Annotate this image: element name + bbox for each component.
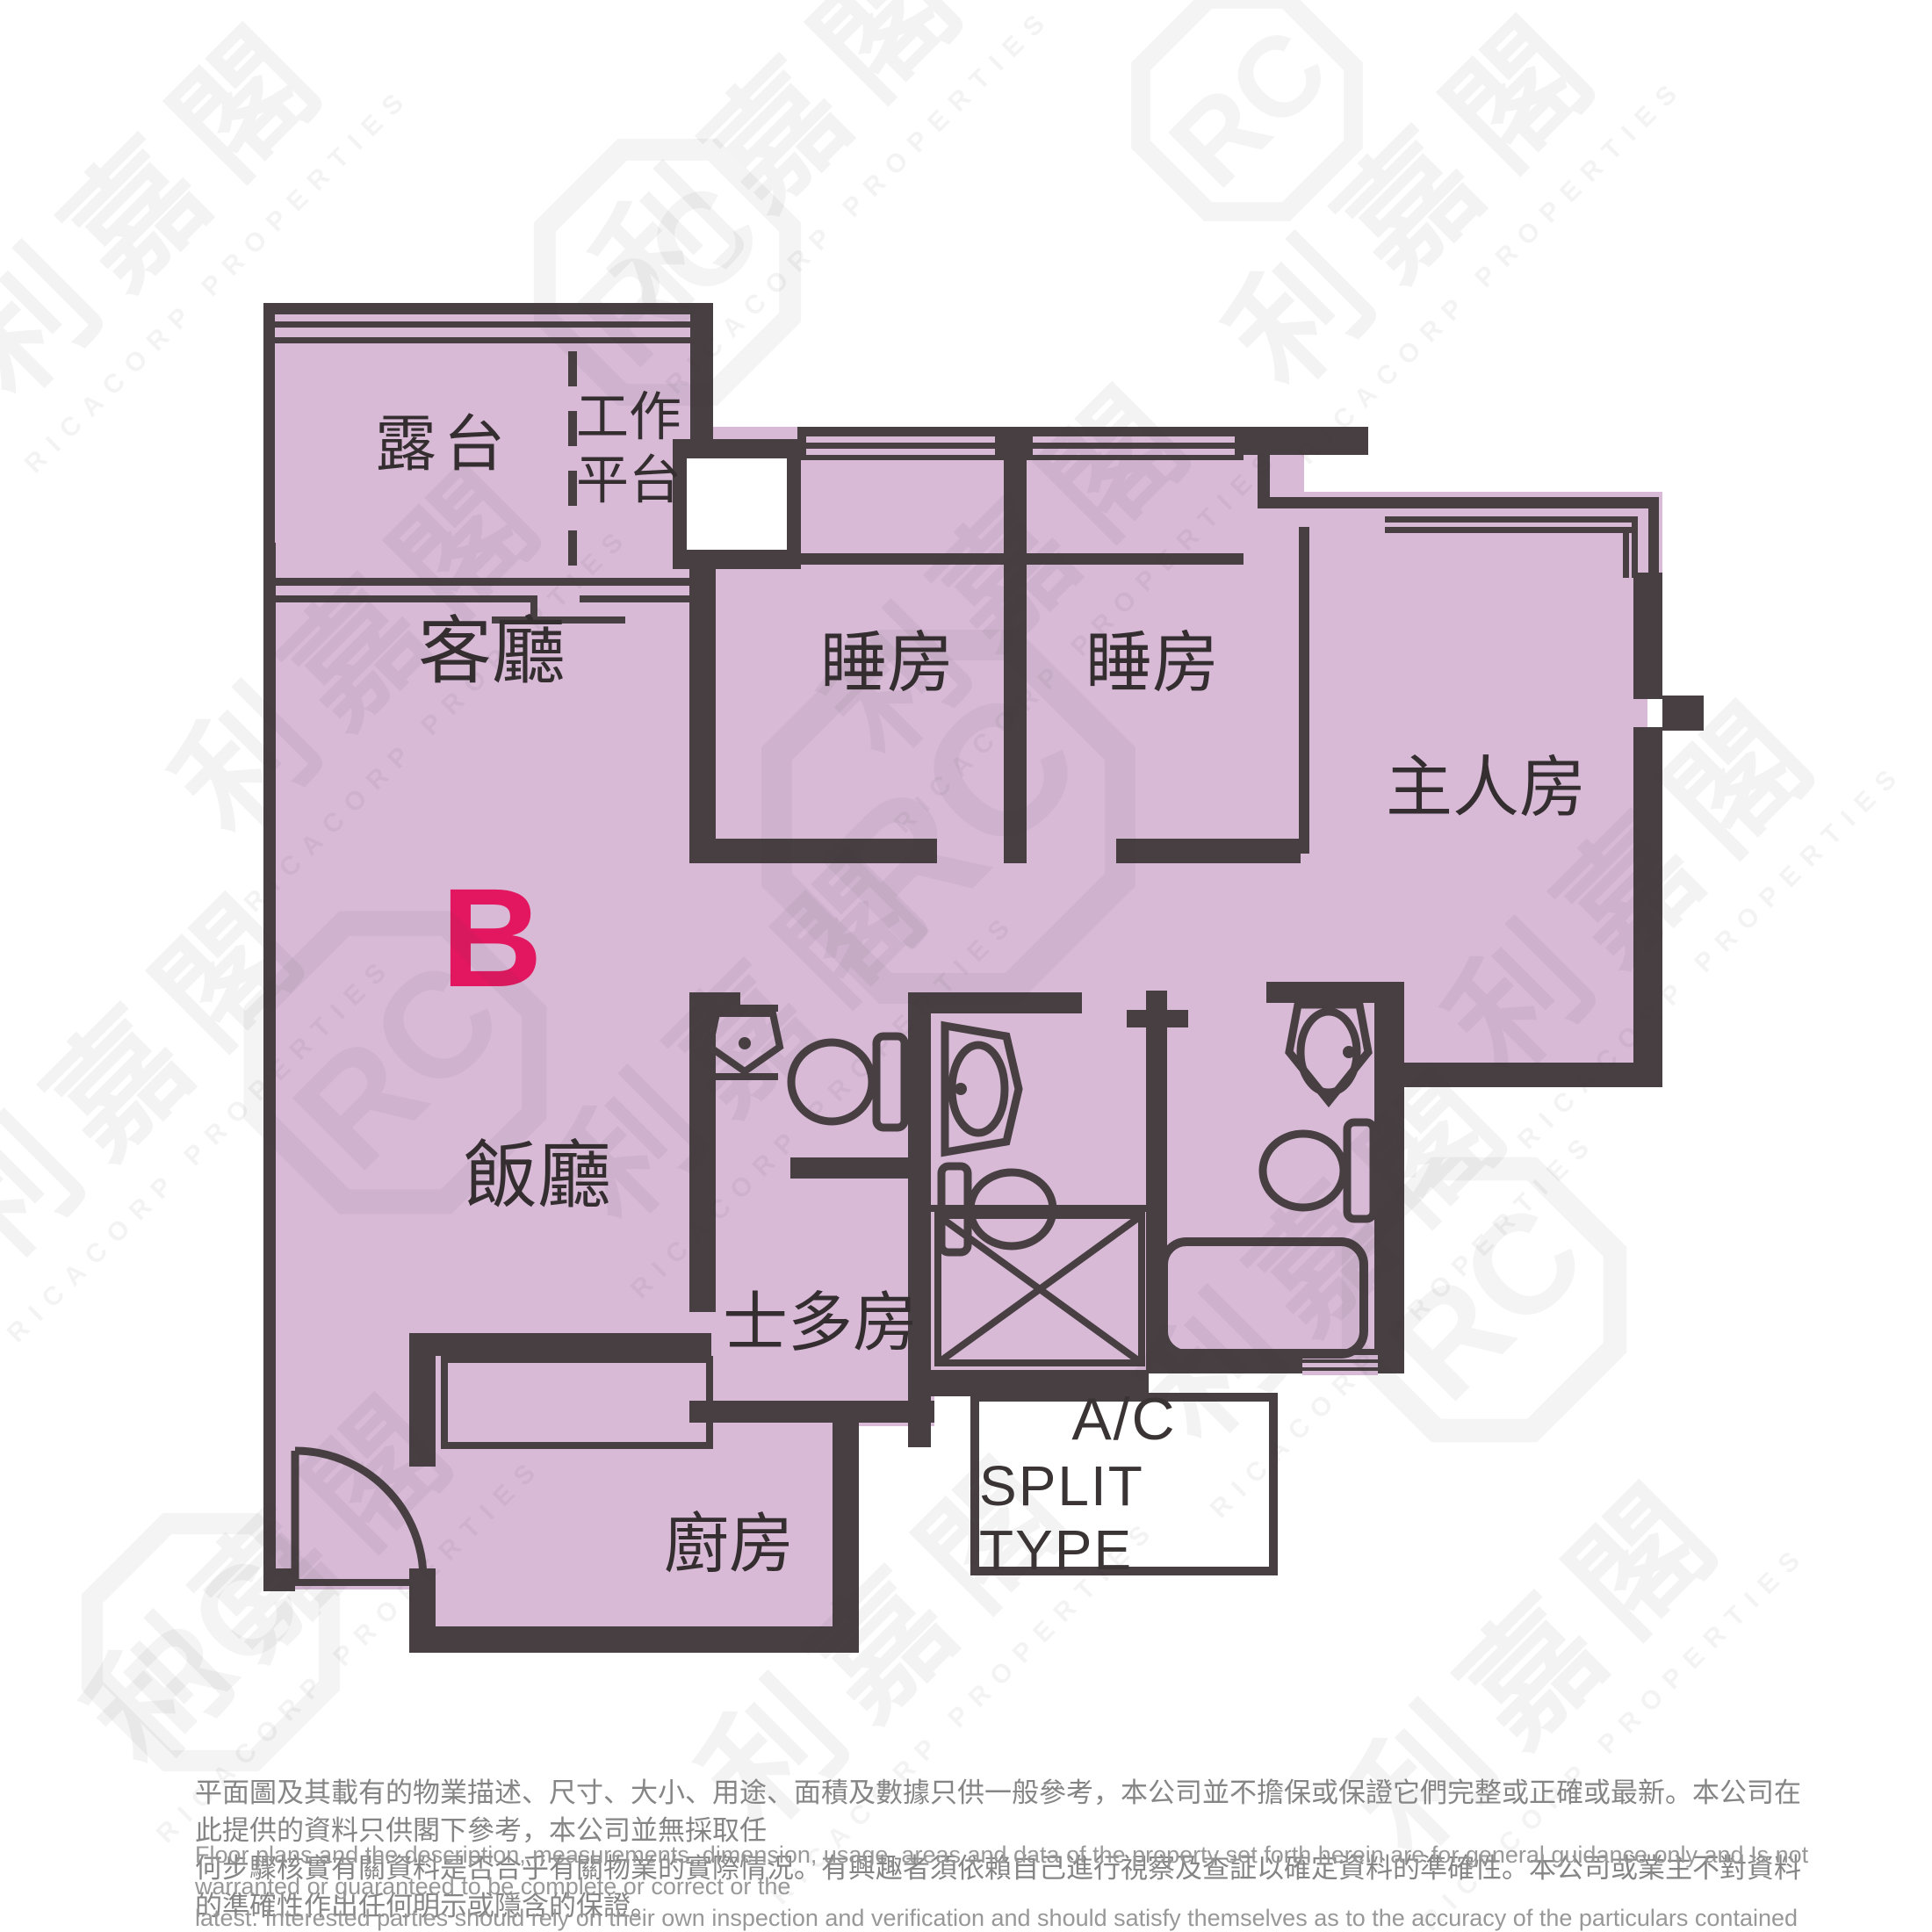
bay-window xyxy=(797,427,1004,460)
wall-segment xyxy=(1116,839,1301,863)
unit-label: B xyxy=(441,857,543,1019)
ac-platform: A/C SPLIT TYPE xyxy=(970,1393,1278,1575)
wall-segment xyxy=(1633,573,1662,699)
door-threshold xyxy=(295,1579,422,1586)
store-room-label: 士多房 xyxy=(723,1271,918,1365)
ac-label-line1: A/C xyxy=(1071,1385,1176,1453)
wall-segment xyxy=(1244,427,1368,455)
wall-segment xyxy=(1127,1010,1188,1027)
wall-segment xyxy=(833,1421,859,1653)
wall-segment xyxy=(1266,982,1376,1003)
watermark-logo: RC xyxy=(1085,0,1409,267)
bay-window-glass xyxy=(1033,436,1235,443)
bedroom1-label: 睡房 xyxy=(820,609,954,705)
corner-window-line xyxy=(1385,527,1632,533)
corner-window-line xyxy=(1623,527,1629,578)
bay-window-glass xyxy=(806,436,995,443)
disclaimer-english: Floor plans and the description, measure… xyxy=(195,1839,1811,1932)
wall-segment xyxy=(689,839,937,863)
watermark-text: 利嘉閣RICACORP PROPERTIES xyxy=(1154,0,1691,471)
dining-room-label: 飯廳 xyxy=(464,1117,611,1223)
wall-segment xyxy=(263,543,276,1590)
wall-segment xyxy=(409,1626,859,1653)
ac-label-line2: SPLIT TYPE xyxy=(979,1454,1269,1583)
wall-segment xyxy=(274,321,706,328)
wall-segment xyxy=(1299,527,1309,854)
bedroom2-label: 睡房 xyxy=(1085,609,1219,705)
wall-segment xyxy=(1662,696,1704,731)
wall-segment xyxy=(931,1205,1149,1212)
disclaimer-en-line2: latest. Interested parties should rely o… xyxy=(195,1902,1811,1932)
bay-window xyxy=(1024,427,1244,460)
wall-segment xyxy=(1258,497,1389,508)
window-line xyxy=(274,578,713,586)
wall-segment xyxy=(263,303,713,314)
wall-segment xyxy=(690,303,713,443)
wall-segment xyxy=(274,337,706,343)
wall-segment xyxy=(790,1157,931,1179)
disclaimer-en-line1: Floor plans and the description, measure… xyxy=(195,1839,1811,1902)
living-room-label: 客廳 xyxy=(418,593,566,699)
window-glass xyxy=(1302,1371,1378,1375)
kitchen-label: 廚房 xyxy=(664,1492,794,1586)
bath2-shower-area xyxy=(931,992,1149,1379)
bay-window-glass xyxy=(806,449,995,455)
window-glass xyxy=(1302,1363,1378,1367)
svg-text:RC: RC xyxy=(1145,4,1352,211)
wall-segment xyxy=(263,1568,295,1591)
bay-window-glass xyxy=(1033,449,1235,455)
master-bath-area xyxy=(1146,982,1404,1373)
window-glass xyxy=(1302,1355,1378,1359)
wall-segment xyxy=(1402,1063,1635,1087)
bay-window-sill xyxy=(797,553,1004,565)
wall-segment xyxy=(931,992,1082,1013)
master-bedroom-label: 主人房 xyxy=(1386,733,1586,830)
wall-segment xyxy=(1004,427,1027,863)
balcony-label: 露台 xyxy=(375,395,512,484)
wall-segment xyxy=(409,1356,436,1467)
wall-segment xyxy=(689,992,716,1312)
corner-window-line xyxy=(1385,516,1638,523)
floor-plan-page: A/C SPLIT TYPE xyxy=(0,0,1932,1932)
wall-segment xyxy=(1146,991,1167,1373)
column-core xyxy=(687,458,787,550)
corner-window-line xyxy=(1648,497,1659,578)
corner-window-line xyxy=(1385,497,1659,508)
wall-segment xyxy=(409,1333,711,1356)
corner-window-line xyxy=(1632,516,1638,578)
wall-segment xyxy=(689,569,716,863)
wall-segment xyxy=(1633,727,1662,1087)
wall-segment xyxy=(1146,1349,1404,1373)
wall-segment xyxy=(1374,982,1404,1373)
wall-segment xyxy=(831,1401,934,1423)
utility-platform-label-2: 平台 xyxy=(576,438,681,515)
bay-window-sill xyxy=(1024,553,1244,565)
kitchen-area xyxy=(409,1333,859,1635)
